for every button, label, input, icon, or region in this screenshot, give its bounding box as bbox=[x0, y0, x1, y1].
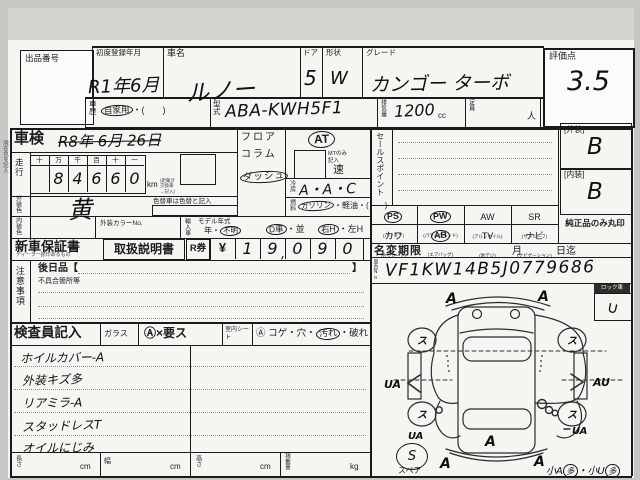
scribble-circle bbox=[546, 407, 553, 414]
cooling-label: 冷房 bbox=[288, 180, 295, 192]
month-label: 月 bbox=[512, 246, 522, 257]
recycle-ticket-label: R券 bbox=[190, 244, 206, 254]
mileage-side-box bbox=[180, 154, 216, 185]
damage-mark-rear-side-right: UA bbox=[572, 426, 587, 437]
price-digit: 1 bbox=[235, 238, 260, 259]
displacement-unit: cc bbox=[438, 112, 446, 121]
lock-car-box: ∪ bbox=[594, 293, 632, 321]
score-label: 評価点 bbox=[549, 52, 576, 62]
equip-sr-label: SR bbox=[528, 212, 541, 222]
handle-option: 右H・左H bbox=[318, 224, 363, 235]
equip-navi-label: ナビ bbox=[525, 231, 543, 241]
glass-options: Ⓐ×要ス bbox=[144, 327, 187, 340]
mileage-note: (距離計交換車→記入) bbox=[160, 178, 176, 194]
equip-ps-circled: PS bbox=[384, 211, 403, 224]
mileage-unit: km bbox=[147, 181, 158, 190]
equip-tv-label: TV bbox=[482, 231, 494, 241]
wheel-mark: ス bbox=[417, 336, 427, 347]
history-paren: ・( ) bbox=[133, 105, 166, 115]
fuel-gasoline-circled: ガソリン bbox=[298, 200, 334, 212]
vin-label: 車台No bbox=[372, 259, 378, 281]
fuel-label: 燃料 bbox=[288, 199, 295, 211]
history-circled: 自家用 bbox=[101, 104, 133, 117]
mileage-digit: 0 bbox=[125, 166, 144, 191]
fender-left bbox=[431, 315, 458, 403]
car-name-label: 車名 bbox=[167, 49, 185, 59]
equip-aw-label: AW bbox=[480, 212, 494, 222]
seat-options-post: ・破れ bbox=[340, 328, 369, 339]
spare-label: スペア bbox=[398, 467, 421, 476]
price-comma: , bbox=[281, 247, 285, 262]
damage-mark-front-left: A bbox=[445, 291, 457, 307]
mileage-col-header: 万 bbox=[49, 156, 68, 165]
front-bumper bbox=[446, 297, 550, 306]
headlight-left bbox=[473, 310, 482, 319]
damage-mark-side-left: UA bbox=[384, 378, 401, 391]
manual-box: 取扱説明書 bbox=[103, 239, 185, 260]
door-label: ドア bbox=[303, 49, 318, 57]
small-u-circled: 多 bbox=[604, 464, 619, 479]
auction-sheet-scan: { "header": { "lot_label": "出品番号", "reg_… bbox=[0, 0, 640, 480]
inspector-note: オイルにじみ bbox=[22, 438, 94, 456]
dealer-car-circled: D車 bbox=[266, 223, 287, 235]
mileage-col-header: 百 bbox=[87, 156, 106, 165]
mileage-digit: 4 bbox=[68, 166, 87, 191]
shape-value: W bbox=[330, 68, 348, 89]
load-label: 積載量 bbox=[284, 453, 290, 470]
damage-mark-rear-center: A bbox=[484, 434, 496, 450]
speed-label: 速 bbox=[333, 164, 344, 176]
interior-color-label: 内装色 bbox=[14, 217, 21, 235]
lot-number-label: 出品番号 bbox=[25, 54, 59, 63]
spare-mark: S bbox=[408, 449, 416, 464]
rear-glass bbox=[463, 409, 531, 429]
cooling-value: A・A・C bbox=[299, 178, 357, 200]
recycle-ticket-label-box: R券 bbox=[186, 239, 210, 260]
sales-point-label: セールスポイント bbox=[375, 132, 384, 196]
seat-options: Ⓐ コゲ・穴・汚れ・破れ bbox=[256, 328, 368, 340]
lock-car-tab: ロック車 bbox=[594, 284, 630, 293]
scribble-circle bbox=[538, 400, 547, 409]
shaken-label: 車検 bbox=[14, 131, 44, 148]
left-handle-rest: ・左H bbox=[339, 224, 364, 234]
defect-places-label: 不具合箇所等 bbox=[38, 278, 80, 286]
history-value: 自家用・( ) bbox=[101, 105, 166, 116]
shape-label: 形状 bbox=[326, 49, 341, 57]
later-items-close: 】 bbox=[352, 263, 362, 274]
at-circled: AT bbox=[308, 130, 336, 149]
dash-circled: ダッシュ bbox=[240, 170, 289, 185]
damage-mark-rear-side-left: UA bbox=[408, 431, 423, 442]
width-label: 幅 bbox=[104, 458, 111, 466]
mileage-col-header: 十 bbox=[30, 156, 49, 165]
small-u-text: ・小U bbox=[577, 466, 604, 477]
exterior-color-value: 黄 bbox=[67, 190, 92, 226]
inspector-label: 検査員記入 bbox=[14, 326, 82, 341]
right-handle-circled: 右H bbox=[318, 223, 339, 235]
mileage-col-header: 千 bbox=[68, 156, 87, 165]
model-year-label: モデル年式 bbox=[198, 218, 231, 225]
genuine-parts-note: 純正品のみ丸印 bbox=[562, 218, 628, 229]
import-label: 輸入車 bbox=[183, 218, 190, 236]
mileage-digit: 8 bbox=[49, 166, 68, 191]
interior-grade-label: [内装] bbox=[564, 171, 584, 180]
length-unit: cm bbox=[80, 463, 91, 472]
capacity-label: 定員 bbox=[467, 99, 474, 111]
headlight-right bbox=[511, 310, 520, 319]
model-year-value: 年・不明 bbox=[204, 226, 241, 236]
windshield bbox=[460, 329, 533, 333]
mileage-digit: 6 bbox=[106, 166, 125, 191]
yen-sign: ¥ bbox=[210, 238, 235, 259]
front-glass bbox=[463, 337, 531, 361]
wheel-mark: ス bbox=[567, 336, 577, 347]
seat-dirt-circled: 汚れ bbox=[315, 327, 340, 340]
model-code-label: 型式 bbox=[212, 100, 220, 115]
mileage-digit: 6 bbox=[87, 166, 106, 191]
equip-ab-circled: AB bbox=[431, 230, 451, 243]
wheel-mark: ス bbox=[567, 410, 577, 421]
manual-label: 取扱説明書 bbox=[114, 243, 174, 256]
dealer-car-rest: ・並 bbox=[287, 224, 305, 234]
door-value: 5 bbox=[304, 66, 317, 90]
lock-car-mark: ∪ bbox=[605, 296, 620, 317]
year-unknown-circled: 不明 bbox=[220, 225, 242, 236]
equip-pw-circled: PW bbox=[430, 210, 451, 223]
model-code-value: ABA-KWH5F1 bbox=[225, 98, 344, 122]
price-digit: 9 bbox=[310, 238, 335, 259]
dash-label-wrap: ダッシュ bbox=[240, 166, 288, 184]
mt-empty-box bbox=[294, 150, 326, 179]
name-change-label: 名変期限 bbox=[374, 245, 422, 257]
price-digit: 0 bbox=[285, 238, 310, 259]
scribble-circle bbox=[552, 410, 558, 416]
first-registration-label: 初度登録年月 bbox=[96, 49, 141, 57]
column-label: コラム bbox=[241, 149, 277, 160]
arrow-left bbox=[408, 375, 420, 392]
floor-label: フロア bbox=[241, 132, 277, 143]
mileage-col-header: 一 bbox=[125, 156, 144, 165]
day-until-label: 日迄 bbox=[556, 246, 576, 257]
price-digit: 0 bbox=[335, 238, 360, 259]
paper-top-strip bbox=[8, 8, 634, 40]
small-damage-note: 小A多・小U多 bbox=[546, 462, 619, 478]
load-unit: kg bbox=[350, 463, 358, 472]
capacity-unit: 人 bbox=[527, 112, 536, 122]
inspector-note: リアミラ-A bbox=[22, 393, 83, 411]
score-value: 3.5 bbox=[567, 66, 610, 97]
height-unit: cm bbox=[260, 463, 271, 472]
damage-mark-rear-corner-right: A bbox=[533, 454, 545, 470]
exterior-grade-value: B bbox=[587, 134, 603, 160]
inspector-note: 外装キズ多 bbox=[22, 370, 83, 389]
color-no-label: 外装カラーNo. bbox=[100, 220, 143, 227]
inspector-note: スタッドレスT bbox=[22, 416, 102, 436]
lock-car-label: ロック車 bbox=[601, 285, 623, 291]
later-items-label: 後日品【 bbox=[38, 263, 78, 274]
exterior-color-label: 外装色 bbox=[14, 195, 21, 213]
small-a-text: 小A bbox=[546, 466, 563, 477]
damage-mark-rear-corner-left: A bbox=[439, 456, 451, 472]
length-label: 長さ bbox=[14, 455, 21, 467]
vin-value: VF1KW14B5J0779686 bbox=[385, 257, 596, 281]
grade-label: グレード bbox=[366, 49, 396, 57]
damage-mark-side-right: AU bbox=[592, 376, 610, 389]
fender-right bbox=[535, 315, 586, 403]
displacement-value: 1200 bbox=[394, 100, 436, 121]
first-registration-value: R1年6月 bbox=[88, 71, 160, 99]
seat-label: 室内シート bbox=[225, 326, 249, 343]
dealer-car-option: D車・並 bbox=[266, 224, 305, 235]
shaken-value: R8年 6月 26日 bbox=[58, 129, 161, 152]
height-label: 高さ bbox=[194, 455, 201, 467]
margin-note: 現在色を記入 bbox=[1, 140, 9, 173]
mileage-label: 走行 bbox=[14, 158, 23, 177]
exterior-grade-label: [外装] bbox=[564, 126, 584, 135]
interior-grade-value: B bbox=[587, 179, 603, 205]
notice-label: 注意事項 bbox=[14, 266, 24, 306]
wheel-mark: ス bbox=[417, 410, 427, 421]
small-a-circled: 多 bbox=[562, 464, 577, 479]
equip-kawa-label: カワ bbox=[384, 231, 402, 241]
inspector-note: ホイルカバー-A bbox=[20, 348, 104, 366]
grade-value: カンゴー ターボ bbox=[370, 68, 509, 97]
mileage-col-header: 十 bbox=[106, 156, 125, 165]
damage-mark-front-right: A bbox=[537, 289, 549, 305]
glass-label: ガラス bbox=[104, 330, 128, 339]
history-label: 車歴 bbox=[88, 100, 96, 115]
seat-options-pre: Ⓐ コゲ・穴・ bbox=[256, 328, 316, 339]
width-unit: cm bbox=[170, 463, 181, 472]
at-wrap: AT bbox=[308, 130, 335, 148]
mileage-digit bbox=[30, 166, 49, 191]
color-change-box bbox=[152, 205, 238, 216]
year-prefix: 年・ bbox=[204, 226, 220, 235]
displacement-label: 排気量 bbox=[379, 99, 386, 117]
equip-cell-ab: AB(エアバッグ) bbox=[417, 225, 464, 261]
warranty-sub: ディーラー捺印あるもの bbox=[16, 253, 71, 259]
arrow-right bbox=[571, 374, 583, 390]
